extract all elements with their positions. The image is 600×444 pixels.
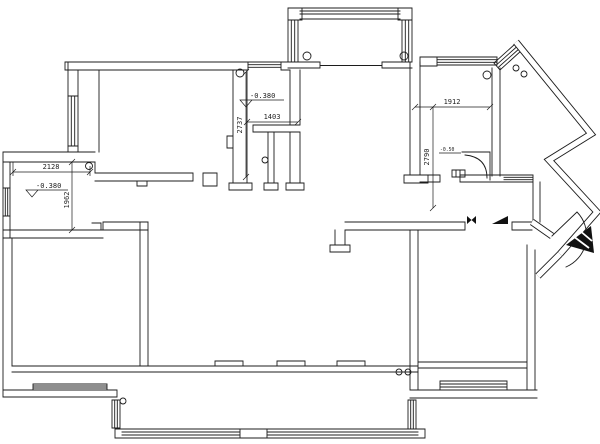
bath-walls xyxy=(404,62,504,183)
spine-wall xyxy=(330,222,532,252)
column-marker xyxy=(400,52,408,60)
floor-plan-canvas: 2128 1962 -0.380 1403 2737 -0.380 1912 2… xyxy=(0,0,600,444)
dim-bath-width: 1912 xyxy=(444,98,461,106)
entry-diagonal-core xyxy=(532,222,560,276)
level-midroom: -0.380 xyxy=(250,92,275,100)
bedroom-bottom-window xyxy=(440,381,507,390)
window-left-upper xyxy=(68,96,78,146)
room-topleft-bottom-wall xyxy=(95,162,217,186)
bath-top-window xyxy=(420,57,497,66)
dim-annex-depth: 1962 xyxy=(63,192,71,209)
dim-annex-width: 2128 xyxy=(43,163,60,171)
balcony-bottom-walls xyxy=(112,400,425,438)
column-markers xyxy=(86,52,528,404)
window-top-mid xyxy=(248,65,281,68)
room-bottomleft-walls xyxy=(3,222,148,397)
room-topleft-walls xyxy=(65,62,290,152)
threshold-symbols xyxy=(467,216,508,224)
level-mark-symbols xyxy=(26,100,461,197)
walls xyxy=(3,8,540,438)
level-entry-step: -0.50 xyxy=(440,147,455,153)
annex-left-window xyxy=(3,188,10,216)
fixtures xyxy=(86,52,528,404)
balcony-top-walls xyxy=(288,8,412,68)
entry-door xyxy=(467,212,594,267)
column-marker xyxy=(120,398,126,404)
column-marker xyxy=(483,71,491,79)
dim-midroom-depth: 2737 xyxy=(236,117,244,134)
dim-midroom-width: 1403 xyxy=(264,113,281,121)
dimension-annotations: 2128 1962 -0.380 1403 2737 -0.380 1912 2… xyxy=(10,69,493,233)
column-marker xyxy=(86,163,93,170)
column-marker xyxy=(303,52,311,60)
living-bottom-wall xyxy=(12,361,418,372)
column-marker xyxy=(262,157,268,163)
bay-bottom-window xyxy=(504,175,540,222)
bedroom-walls xyxy=(410,230,537,398)
column-marker xyxy=(521,71,527,77)
dim-bath-depth: 2790 xyxy=(423,149,431,166)
corner-shower xyxy=(452,152,490,180)
room-bottomleft-window xyxy=(33,384,107,390)
column-marker xyxy=(513,65,519,71)
level-annex: -0.380 xyxy=(36,182,61,190)
annex-walls xyxy=(3,152,148,238)
